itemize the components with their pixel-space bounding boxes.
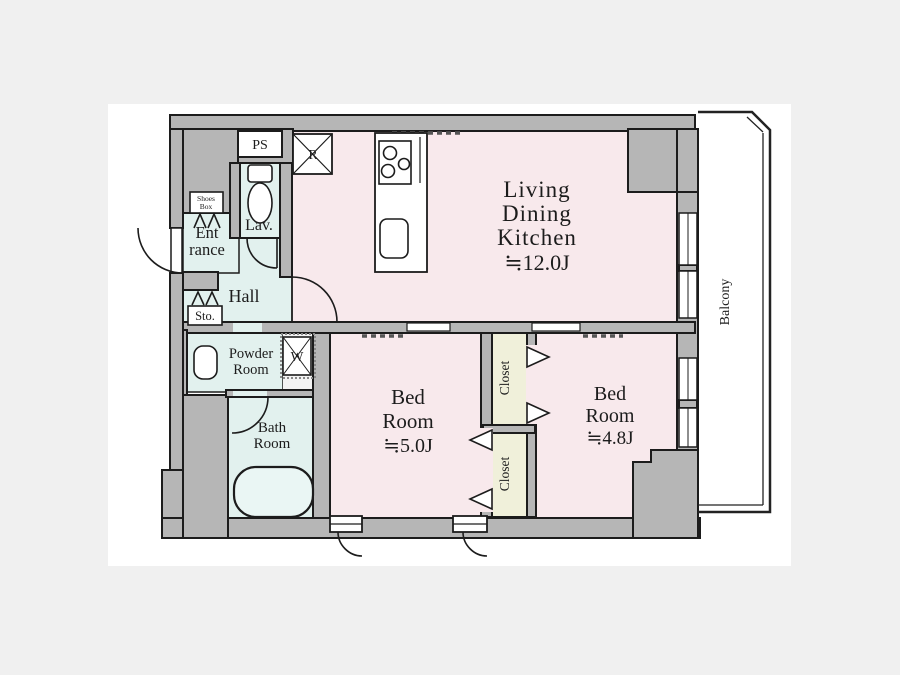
closet-upper-label: Closet: [497, 361, 512, 396]
entrance-door-panel: [171, 228, 182, 273]
bedroom48-label-line1: Bed: [594, 383, 626, 405]
sliding-door-bedroom5: [407, 323, 450, 331]
bedroom48-label-line2: Room: [586, 405, 635, 427]
bedroom48-size-label: ≒4.8J: [586, 428, 633, 449]
kitchen-sink-icon: [380, 219, 408, 258]
powder-sink-icon: [194, 346, 217, 379]
bedroom5-label-line1: Bed: [391, 385, 425, 409]
ldk-size-label: ≒12.0J: [504, 250, 570, 275]
ldk-label-line2: Dining: [502, 201, 572, 226]
pipe-space-label: PS: [252, 138, 268, 153]
floor-plan-canvas: Living Dining Kitchen ≒12.0J Bed Room ≒5…: [0, 0, 900, 675]
wall-bottom: [162, 518, 700, 538]
lavatory-label: Lav.: [245, 217, 273, 234]
window-mullion-1: [679, 265, 697, 271]
hall-label: Hall: [229, 286, 260, 306]
wall-lav-left: [230, 163, 240, 238]
balcony-label: Balcony: [718, 279, 733, 326]
stove-icon: [379, 141, 411, 184]
closet-lower-label: Closet: [497, 457, 512, 492]
bedroom5-size-label: ≒5.0J: [383, 435, 433, 457]
ldk-label-line1: Living: [503, 177, 570, 202]
washing-machine-label: W: [291, 349, 304, 364]
refrigerator-label: R: [308, 147, 317, 162]
floor-plan: Living Dining Kitchen ≒12.0J Bed Room ≒5…: [0, 0, 900, 675]
powder-label-line1: Powder: [229, 346, 273, 362]
wall-strip-powder-left: [183, 330, 187, 396]
toilet-tank-icon: [248, 165, 272, 182]
wall-corner-chunk: [633, 450, 698, 538]
entrance-label-line2: rance: [189, 240, 225, 259]
ldk-label-line3: Kitchen: [497, 225, 577, 250]
shoes-box-label-line2: Box: [200, 202, 213, 211]
sliding-door-bedroom48: [532, 323, 580, 331]
wall-bath-left-mass: [183, 395, 228, 538]
bedroom5-label-line2: Room: [382, 409, 433, 433]
bathtub-icon: [234, 467, 313, 517]
wall-ldk-notch-1: [628, 129, 677, 192]
window-mullion-2: [679, 400, 697, 408]
wall-below-entrance: [183, 272, 218, 290]
opening-hall-powder: [233, 323, 262, 332]
bath-label-line2: Room: [254, 436, 291, 452]
powder-label-line2: Room: [233, 362, 269, 378]
bath-label-line1: Bath: [258, 420, 287, 436]
wall-left-mid: [170, 273, 183, 470]
opening-bath-door: [233, 391, 267, 396]
wall-lav-hall-right: [280, 163, 292, 277]
storage-label: Sto.: [195, 309, 215, 323]
wall-left-upper: [170, 129, 183, 228]
